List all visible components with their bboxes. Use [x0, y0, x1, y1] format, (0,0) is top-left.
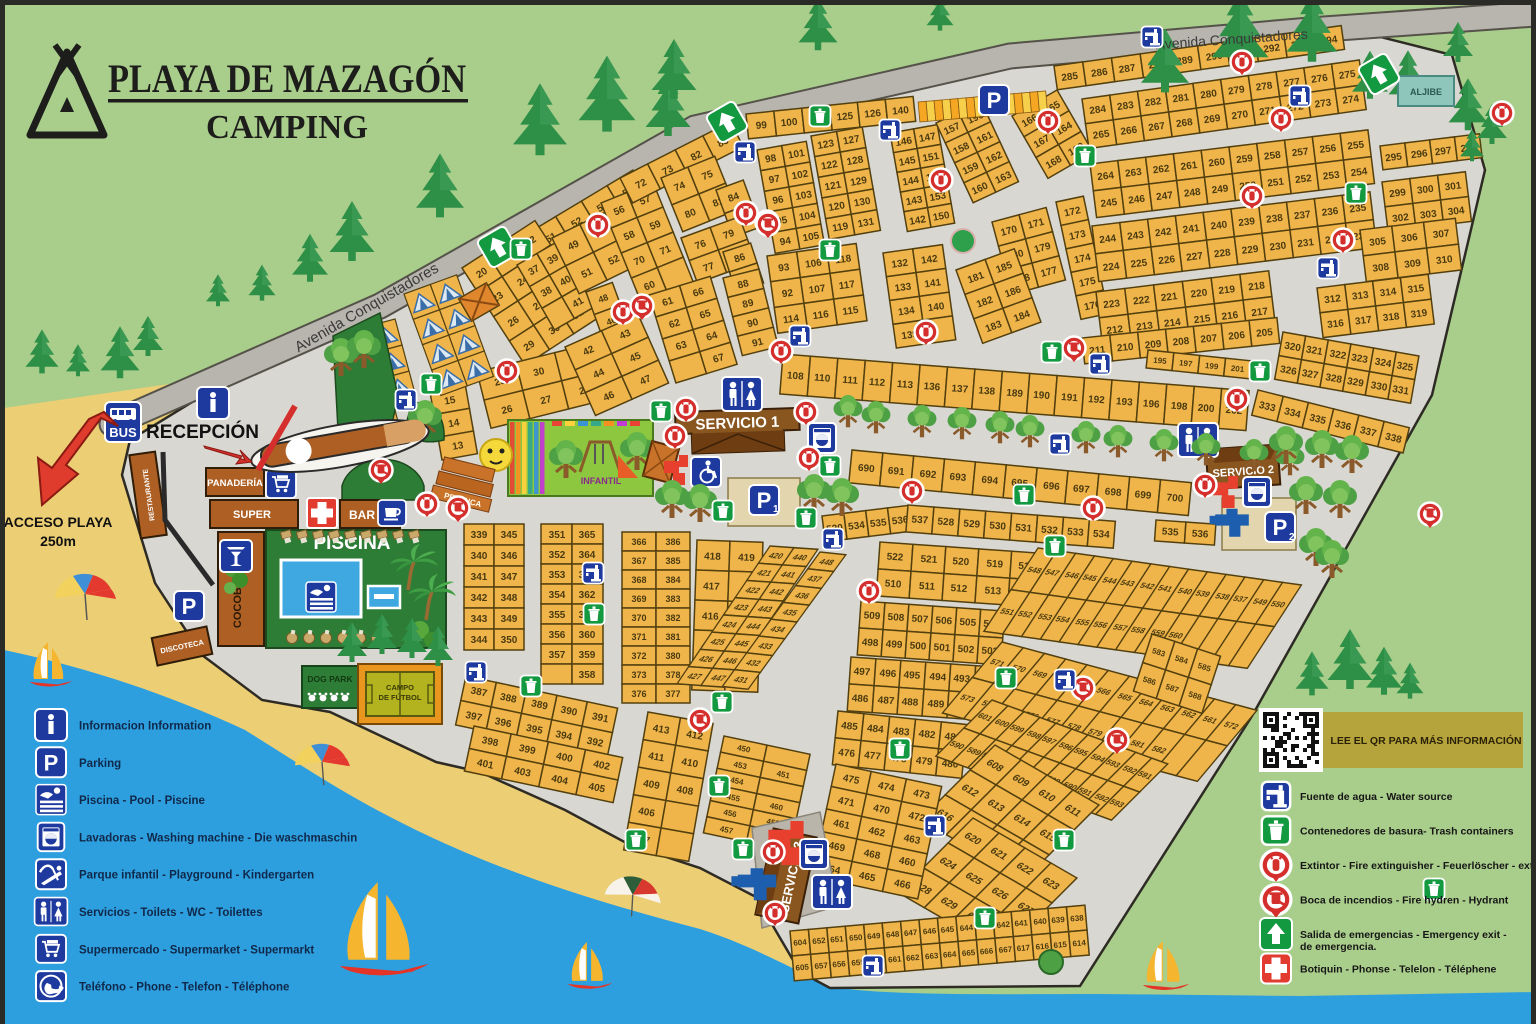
svg-text:508: 508	[887, 612, 905, 624]
svg-text:651: 651	[830, 934, 845, 944]
svg-text:189: 189	[1006, 388, 1024, 400]
svg-text:222: 222	[1132, 295, 1150, 308]
svg-text:108: 108	[787, 370, 805, 382]
svg-text:416: 416	[702, 611, 719, 623]
svg-text:537: 537	[911, 514, 929, 526]
svg-text:339: 339	[471, 530, 488, 541]
svg-text:264: 264	[1097, 170, 1115, 183]
svg-text:498: 498	[861, 637, 879, 649]
svg-text:418: 418	[704, 551, 721, 563]
svg-text:191: 191	[1061, 392, 1079, 404]
svg-text:366: 366	[631, 537, 646, 547]
svg-text:Parque infantil - Playground -: Parque infantil - Playground - Kindergar…	[79, 870, 314, 882]
svg-text:536: 536	[1191, 529, 1209, 541]
svg-text:646: 646	[923, 926, 938, 936]
svg-text:238: 238	[1266, 213, 1284, 226]
svg-text:312: 312	[1324, 293, 1342, 306]
svg-text:650: 650	[849, 933, 864, 943]
svg-text:136: 136	[923, 381, 941, 393]
svg-text:317: 317	[1354, 315, 1372, 328]
svg-text:348: 348	[501, 593, 518, 604]
svg-text:362: 362	[579, 590, 596, 601]
svg-text:641: 641	[1014, 918, 1029, 928]
svg-text:259: 259	[1236, 153, 1254, 166]
svg-text:RECEPCIÓN: RECEPCIÓN	[146, 421, 259, 443]
svg-text:307: 307	[1432, 228, 1450, 241]
svg-text:116: 116	[812, 309, 830, 322]
svg-text:381: 381	[665, 632, 680, 642]
svg-text:229: 229	[1241, 244, 1259, 257]
svg-text:251: 251	[1267, 176, 1285, 189]
svg-text:483: 483	[892, 726, 910, 739]
svg-text:488: 488	[901, 697, 919, 709]
svg-text:99: 99	[755, 120, 768, 132]
svg-text:482: 482	[918, 729, 936, 742]
svg-text:201: 201	[1230, 364, 1245, 374]
svg-text:Extintor - Fire extinguisher -: Extintor - Fire extinguisher - Feuerlösc…	[1300, 860, 1536, 872]
svg-text:195: 195	[1153, 356, 1168, 366]
svg-text:246: 246	[1128, 194, 1146, 207]
svg-text:Piscina - Pool - Piscine: Piscina - Pool - Piscine	[79, 795, 205, 807]
svg-text:310: 310	[1435, 254, 1453, 267]
svg-text:383: 383	[665, 594, 680, 604]
svg-text:484: 484	[866, 723, 884, 736]
svg-text:247: 247	[1156, 190, 1174, 203]
svg-text:648: 648	[886, 929, 901, 939]
svg-text:224: 224	[1102, 261, 1120, 274]
svg-text:PANADERÍA: PANADERÍA	[207, 478, 263, 489]
svg-text:642: 642	[996, 920, 1011, 930]
svg-text:190: 190	[1033, 390, 1051, 402]
svg-text:384: 384	[665, 575, 680, 585]
svg-text:205: 205	[1256, 327, 1274, 340]
svg-text:PLAYA DE MAZAGÓN: PLAYA DE MAZAGÓN	[108, 56, 466, 101]
svg-text:356: 356	[549, 630, 566, 641]
svg-text:372: 372	[631, 651, 646, 661]
svg-text:198: 198	[1170, 401, 1188, 413]
svg-text:351: 351	[549, 530, 566, 541]
svg-text:de emergencia.: de emergencia.	[1300, 941, 1377, 953]
svg-text:110: 110	[814, 373, 831, 385]
svg-text:700: 700	[1166, 492, 1184, 505]
svg-text:698: 698	[1104, 486, 1122, 499]
svg-text:304: 304	[1447, 205, 1465, 218]
svg-text:262: 262	[1152, 163, 1170, 176]
svg-text:386: 386	[665, 537, 680, 547]
svg-text:114: 114	[782, 313, 800, 326]
svg-text:308: 308	[1372, 262, 1390, 275]
svg-text:506: 506	[935, 615, 953, 627]
svg-text:219: 219	[1218, 284, 1236, 297]
svg-text:313: 313	[1351, 290, 1369, 303]
svg-text:534: 534	[848, 520, 866, 533]
svg-text:CAMPO: CAMPO	[386, 683, 414, 692]
svg-text:221: 221	[1160, 291, 1178, 304]
svg-text:Contenedores de basura- Trash: Contenedores de basura- Trash containers	[1300, 826, 1514, 838]
svg-text:509: 509	[863, 610, 881, 622]
svg-text:368: 368	[631, 575, 646, 585]
svg-text:245: 245	[1100, 197, 1118, 210]
svg-text:494: 494	[929, 672, 947, 684]
svg-text:512: 512	[950, 583, 968, 595]
svg-text:239: 239	[1238, 216, 1256, 229]
svg-text:2: 2	[1289, 532, 1295, 543]
svg-text:365: 365	[579, 530, 596, 541]
svg-text:690: 690	[857, 463, 875, 476]
svg-text:692: 692	[919, 469, 937, 482]
svg-text:INFANTIL: INFANTIL	[581, 476, 622, 486]
svg-text:507: 507	[911, 614, 929, 626]
svg-text:691: 691	[887, 466, 905, 479]
svg-text:605: 605	[795, 962, 810, 972]
svg-text:487: 487	[877, 695, 895, 707]
svg-text:218: 218	[1248, 280, 1266, 293]
svg-text:ALJIBE: ALJIBE	[1410, 87, 1442, 97]
svg-text:479: 479	[915, 755, 933, 768]
svg-text:314: 314	[1379, 286, 1397, 299]
svg-text:519: 519	[986, 558, 1004, 570]
svg-text:112: 112	[869, 377, 886, 389]
svg-text:93: 93	[778, 262, 791, 275]
svg-text:360: 360	[579, 630, 596, 641]
svg-text:230: 230	[1269, 240, 1287, 253]
svg-text:656: 656	[832, 959, 847, 969]
svg-text:316: 316	[1327, 318, 1345, 331]
svg-text:378: 378	[665, 670, 680, 680]
svg-text:Supermercado - Supermarket - S: Supermercado - Supermarket - Supermarkt	[79, 944, 314, 956]
svg-text:138: 138	[978, 385, 996, 397]
svg-text:367: 367	[631, 556, 646, 566]
svg-text:125: 125	[836, 111, 854, 124]
svg-text:644: 644	[959, 923, 974, 933]
svg-text:137: 137	[951, 383, 969, 395]
svg-text:248: 248	[1183, 187, 1201, 200]
svg-text:614: 614	[1072, 938, 1087, 948]
svg-text:647: 647	[904, 928, 919, 938]
svg-text:645: 645	[940, 925, 955, 935]
svg-text:357: 357	[549, 650, 566, 661]
svg-text:253: 253	[1322, 170, 1340, 183]
svg-text:237: 237	[1293, 209, 1311, 222]
svg-text:477: 477	[864, 750, 882, 763]
svg-text:200: 200	[1197, 403, 1215, 415]
svg-text:617: 617	[1016, 943, 1031, 953]
svg-text:210: 210	[1116, 342, 1134, 355]
svg-text:240: 240	[1210, 220, 1228, 233]
svg-text:665: 665	[962, 948, 977, 958]
svg-text:489: 489	[927, 698, 945, 710]
svg-text:533: 533	[1067, 527, 1085, 539]
svg-text:260: 260	[1208, 157, 1226, 170]
svg-text:359: 359	[579, 650, 596, 661]
svg-text:496: 496	[879, 668, 897, 680]
svg-text:255: 255	[1347, 139, 1365, 152]
svg-text:250m: 250m	[40, 533, 76, 549]
svg-text:263: 263	[1125, 167, 1143, 180]
svg-text:92: 92	[781, 288, 794, 301]
svg-text:693: 693	[949, 471, 967, 484]
svg-text:Fuente de agua - Water source: Fuente de agua - Water source	[1300, 791, 1453, 803]
svg-text:419: 419	[738, 552, 755, 564]
svg-text:529: 529	[963, 518, 981, 530]
svg-text:Servicios - Toilets - WC - Toi: Servicios - Toilets - WC - Toilettes	[79, 907, 263, 919]
svg-text:664: 664	[943, 950, 958, 960]
svg-text:306: 306	[1400, 232, 1418, 245]
svg-text:521: 521	[920, 554, 938, 566]
svg-text:476: 476	[838, 747, 856, 760]
svg-text:530: 530	[989, 520, 1007, 532]
svg-text:225: 225	[1130, 258, 1148, 271]
svg-text:615: 615	[1053, 940, 1068, 950]
svg-text:697: 697	[1072, 483, 1090, 496]
svg-text:340: 340	[471, 551, 488, 562]
svg-text:206: 206	[1228, 330, 1246, 343]
svg-text:666: 666	[979, 946, 994, 956]
svg-text:220: 220	[1190, 287, 1208, 300]
svg-text:699: 699	[1134, 489, 1152, 502]
svg-text:305: 305	[1369, 236, 1387, 249]
svg-text:510: 510	[884, 578, 902, 590]
svg-text:499: 499	[885, 639, 903, 651]
svg-text:355: 355	[549, 610, 566, 621]
svg-text:369: 369	[631, 594, 646, 604]
svg-text:350: 350	[501, 635, 518, 646]
svg-text:236: 236	[1321, 206, 1339, 219]
svg-text:353: 353	[549, 570, 566, 581]
svg-text:347: 347	[501, 572, 518, 583]
svg-text:192: 192	[1088, 394, 1106, 406]
svg-text:535: 535	[869, 517, 887, 530]
svg-text:604: 604	[793, 938, 808, 948]
svg-text:652: 652	[812, 936, 827, 946]
svg-text:640: 640	[1033, 917, 1048, 927]
svg-text:500: 500	[909, 641, 927, 653]
svg-text:318: 318	[1382, 311, 1400, 324]
svg-text:301: 301	[1444, 180, 1462, 193]
svg-text:342: 342	[471, 593, 488, 604]
svg-text:SERVICIO 1: SERVICIO 1	[695, 414, 779, 434]
svg-text:Teléfono - Phone - Telefon - T: Teléfono - Phone - Telefon - Téléphone	[79, 982, 289, 994]
svg-text:495: 495	[903, 670, 921, 682]
svg-text:Lavadoras - Washing machine -: Lavadoras - Washing machine - Die waschm…	[79, 832, 357, 844]
svg-text:227: 227	[1186, 251, 1204, 264]
svg-text:485: 485	[841, 720, 859, 733]
svg-text:528: 528	[937, 516, 955, 528]
svg-text:380: 380	[665, 651, 680, 661]
svg-text:126: 126	[864, 108, 882, 121]
svg-text:Parking: Parking	[79, 758, 121, 770]
svg-text:208: 208	[1172, 336, 1190, 349]
svg-text:242: 242	[1154, 226, 1172, 239]
svg-text:209: 209	[1144, 339, 1162, 352]
svg-text:662: 662	[906, 953, 921, 963]
svg-text:520: 520	[952, 556, 970, 568]
svg-text:694: 694	[981, 475, 999, 488]
svg-text:639: 639	[1051, 915, 1066, 925]
svg-text:228: 228	[1213, 247, 1231, 260]
svg-text:638: 638	[1070, 913, 1085, 923]
svg-text:352: 352	[549, 550, 566, 561]
svg-text:376: 376	[631, 689, 646, 699]
svg-text:346: 346	[501, 551, 518, 562]
svg-text:SUPER: SUPER	[233, 509, 271, 521]
svg-text:113: 113	[896, 379, 913, 391]
svg-text:296: 296	[1410, 148, 1428, 161]
svg-text:244: 244	[1099, 233, 1117, 246]
svg-text:111: 111	[842, 375, 859, 387]
svg-text:343: 343	[471, 614, 488, 625]
svg-text:241: 241	[1182, 223, 1200, 236]
svg-text:231: 231	[1297, 237, 1315, 250]
svg-text:531: 531	[1015, 522, 1033, 534]
svg-text:249: 249	[1211, 183, 1229, 196]
svg-text:256: 256	[1319, 143, 1337, 156]
svg-text:100: 100	[780, 117, 798, 130]
svg-text:501: 501	[933, 642, 951, 654]
svg-text:417: 417	[703, 581, 720, 593]
svg-text:513: 513	[984, 585, 1002, 597]
svg-text:295: 295	[1385, 151, 1403, 164]
svg-text:358: 358	[579, 670, 596, 681]
svg-text:261: 261	[1180, 160, 1198, 173]
svg-text:193: 193	[1116, 396, 1134, 408]
svg-text:534: 534	[1093, 529, 1111, 541]
svg-text:140: 140	[892, 105, 910, 118]
svg-text:486: 486	[851, 693, 869, 705]
svg-text:DE FÚTBOL: DE FÚTBOL	[379, 693, 422, 702]
svg-text:258: 258	[1263, 150, 1281, 163]
svg-text:309: 309	[1404, 258, 1422, 271]
svg-text:299: 299	[1389, 187, 1407, 200]
svg-text:696: 696	[1043, 481, 1061, 494]
svg-text:297: 297	[1434, 145, 1452, 158]
svg-text:196: 196	[1142, 398, 1160, 410]
svg-text:BAR: BAR	[349, 508, 375, 522]
svg-text:371: 371	[631, 632, 646, 642]
svg-text:385: 385	[665, 556, 680, 566]
svg-text:349: 349	[501, 614, 518, 625]
svg-text:649: 649	[867, 931, 882, 941]
svg-text:354: 354	[549, 590, 566, 601]
svg-text:Informacion Information: Informacion Information	[79, 721, 211, 733]
svg-text:382: 382	[665, 613, 680, 623]
svg-text:257: 257	[1291, 146, 1309, 159]
svg-text:252: 252	[1295, 173, 1313, 186]
svg-text:115: 115	[842, 305, 860, 318]
svg-text:Salida de emergencias - Emerge: Salida de emergencias - Emergency exit -	[1300, 929, 1507, 941]
svg-text:505: 505	[959, 617, 977, 629]
svg-text:661: 661	[888, 954, 903, 964]
svg-text:373: 373	[631, 670, 646, 680]
svg-text:344: 344	[471, 635, 488, 646]
svg-text:497: 497	[853, 666, 871, 678]
svg-text:663: 663	[925, 951, 940, 961]
svg-text:226: 226	[1158, 254, 1176, 267]
svg-text:Boca de incendios - Fire hydre: Boca de incendios - Fire hydren - Hydran…	[1300, 895, 1509, 907]
svg-text:319: 319	[1410, 308, 1428, 321]
svg-text:502: 502	[957, 644, 975, 656]
svg-text:254: 254	[1350, 166, 1368, 179]
svg-text:345: 345	[501, 530, 518, 541]
svg-text:667: 667	[998, 945, 1013, 955]
svg-text:DOG PARK: DOG PARK	[307, 674, 353, 684]
svg-text:315: 315	[1407, 283, 1425, 296]
svg-text:197: 197	[1179, 358, 1194, 368]
svg-text:217: 217	[1251, 306, 1269, 319]
svg-text:535: 535	[1161, 526, 1179, 538]
svg-text:LEE EL QR PARA MÁS INFORMACIÓN: LEE EL QR PARA MÁS INFORMACIÓN	[1330, 734, 1521, 747]
svg-text:370: 370	[631, 613, 646, 623]
svg-text:ACCESO PLAYA: ACCESO PLAYA	[4, 514, 113, 530]
svg-text:341: 341	[471, 572, 488, 583]
svg-text:377: 377	[665, 689, 680, 699]
svg-text:Botiquin - Phonse - Telelon -: Botiquin - Phonse - Telelon - Téléphene	[1300, 964, 1497, 976]
svg-text:511: 511	[919, 581, 936, 593]
svg-text:207: 207	[1200, 333, 1218, 346]
svg-text:216: 216	[1221, 310, 1239, 323]
svg-text:364: 364	[579, 550, 596, 561]
svg-text:300: 300	[1416, 184, 1434, 197]
svg-text:199: 199	[1205, 361, 1220, 371]
svg-text:657: 657	[814, 961, 829, 971]
svg-text:CAMPING: CAMPING	[206, 109, 368, 146]
svg-text:117: 117	[838, 279, 856, 292]
svg-text:1: 1	[773, 504, 779, 515]
svg-text:303: 303	[1419, 209, 1437, 222]
svg-text:243: 243	[1127, 230, 1145, 243]
svg-text:223: 223	[1103, 298, 1121, 311]
svg-text:302: 302	[1392, 212, 1410, 225]
svg-text:522: 522	[886, 552, 904, 564]
